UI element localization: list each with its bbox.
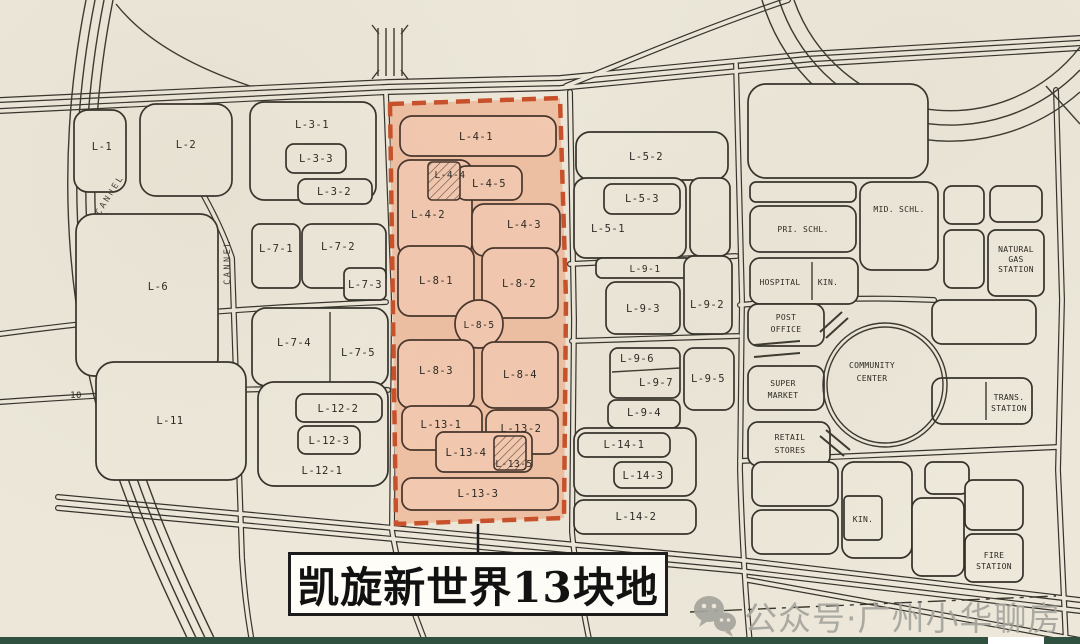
parcel — [752, 510, 838, 554]
facility-label: COMMUNITYCENTER — [849, 361, 895, 383]
parcel-label-L-4-4: L-4-4 — [434, 170, 465, 181]
parcel-label-L-7-2: L-7-2 — [321, 241, 355, 253]
wechat-chat-bubbles-icon — [692, 594, 738, 638]
bridge-icon — [372, 25, 408, 79]
parcel-label-L-9-3: L-9-3 — [626, 303, 660, 315]
parcel-label-L-3-2: L-3-2 — [317, 186, 351, 198]
parcel-label-L-4-3: L-4-3 — [507, 219, 541, 231]
parcel — [965, 480, 1023, 530]
parcel-label-L-8-2: L-8-2 — [502, 278, 536, 290]
parcel-hatched — [428, 162, 460, 200]
facility-label: KIN. — [818, 278, 838, 287]
parcel-label-L-8-5: L-8-5 — [463, 320, 494, 331]
facility-label: MID. SCHL. — [873, 205, 924, 214]
community-center-ring — [823, 323, 947, 447]
road-center — [572, 336, 738, 341]
parcel — [932, 300, 1036, 344]
parcel — [748, 422, 830, 466]
parcel-label-L-9-6: L-9-6 — [620, 353, 654, 365]
parcel-label-L-8-4: L-8-4 — [503, 369, 537, 381]
parcel — [252, 224, 300, 288]
callout-box: 凯旋新世界13块地 — [288, 552, 668, 616]
parcel-label-L-13-4: L-13-4 — [446, 447, 487, 459]
parcel-label-L-7-3: L-7-3 — [348, 279, 382, 291]
parcel-label-L-13-1: L-13-1 — [421, 419, 462, 431]
parcel-label-L-7-4: L-7-4 — [277, 337, 311, 349]
parcel-label-L-5-2: L-5-2 — [629, 151, 663, 163]
parcel-label-L-8-3: L-8-3 — [419, 365, 453, 377]
parcel-label-L-12-1: L-12-1 — [302, 465, 343, 477]
parcel-label-L-13-3: L-13-3 — [458, 488, 499, 500]
bottom-bar-segment — [0, 637, 988, 644]
parcel — [750, 182, 856, 202]
land-use-map: L-1L-2L-3-1L-3-3L-3-2L-6L-7-1L-7-2L-7-3L… — [0, 0, 1080, 644]
parcel-label-L-7-5: L-7-5 — [341, 347, 375, 359]
facility-label: HOSPITAL — [760, 278, 801, 287]
parcel — [860, 182, 938, 270]
parcel — [944, 186, 984, 224]
parcel — [690, 178, 730, 256]
facility-label: PRI. SCHL. — [777, 225, 828, 234]
parcel — [990, 186, 1042, 222]
parcel-label-L-12-3: L-12-3 — [309, 435, 350, 447]
parcel-label-L-4-2: L-4-2 — [411, 209, 445, 221]
parcel — [944, 230, 984, 288]
road-center — [566, 0, 788, 86]
parcel-label-L-8-1: L-8-1 — [419, 275, 453, 287]
parcel-label-L-14-2: L-14-2 — [616, 511, 657, 523]
parcel-label-L-1: L-1 — [92, 141, 112, 153]
parcel — [748, 366, 824, 410]
parcel-label-L-4-1: L-4-1 — [459, 131, 493, 143]
parcel-label-L-3-3: L-3-3 — [299, 153, 333, 165]
callout-label: 凯旋新世界13块地 — [297, 554, 658, 615]
parcel-label-L-7-1: L-7-1 — [259, 243, 293, 255]
parcel — [684, 256, 732, 334]
parcel-label-L-5-3: L-5-3 — [625, 193, 659, 205]
parcel-label-L-9-7: L-9-7 — [639, 377, 673, 389]
parcel-label-L-6: L-6 — [148, 281, 168, 293]
parcel — [925, 462, 969, 494]
parcel-label-L-4-5: L-4-5 — [472, 178, 506, 190]
parcel-label-L-2: L-2 — [176, 139, 196, 151]
parcel — [912, 498, 964, 576]
parcel-label-L-9-1: L-9-1 — [629, 264, 660, 275]
parcel — [752, 462, 838, 506]
parcel-label-L-3-1: L-3-1 — [295, 119, 329, 131]
parcel-label-L-13-5: L-13-5 — [495, 459, 532, 470]
parcel — [748, 84, 928, 178]
canal-label: CANNEL — [223, 239, 233, 285]
parcel-label-L-14-3: L-14-3 — [623, 470, 664, 482]
parcel-label-10: 10 — [70, 391, 82, 401]
parcel-label-L-11: L-11 — [156, 415, 183, 427]
parcel-label-L-9-5: L-9-5 — [691, 373, 725, 385]
bottom-bar-segment — [1044, 637, 1080, 644]
parcel-label-L-14-1: L-14-1 — [604, 439, 645, 451]
watermark-text: 公众号·广州小华聊房 — [744, 592, 1062, 640]
watermark: 公众号·广州小华聊房 — [692, 592, 1062, 640]
parcel-label-L-5-1: L-5-1 — [591, 223, 625, 235]
bottom-bar — [0, 637, 1080, 644]
facility-label: KIN. — [853, 515, 873, 524]
parcel-label-L-12-2: L-12-2 — [318, 403, 359, 415]
parcel-label-L-9-4: L-9-4 — [627, 407, 661, 419]
parcel-label-L-13-2: L-13-2 — [501, 423, 542, 435]
map-canvas: L-1L-2L-3-1L-3-3L-3-2L-6L-7-1L-7-2L-7-3L… — [0, 0, 1080, 644]
parcel — [76, 214, 218, 376]
parcel-label-L-9-2: L-9-2 — [690, 299, 724, 311]
